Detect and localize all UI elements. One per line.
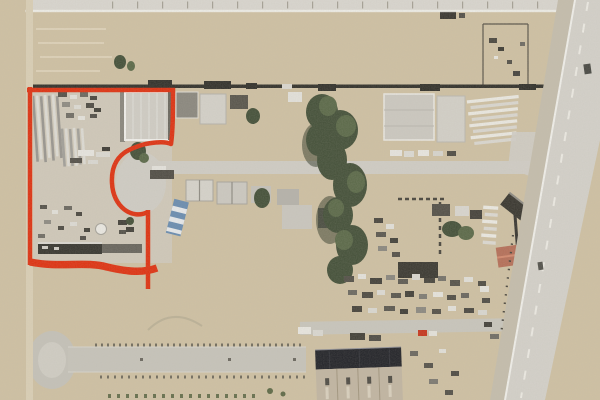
aerial-scene: [0, 0, 600, 400]
photo-grain-overlay: [0, 0, 600, 400]
satellite-image: [0, 0, 600, 400]
